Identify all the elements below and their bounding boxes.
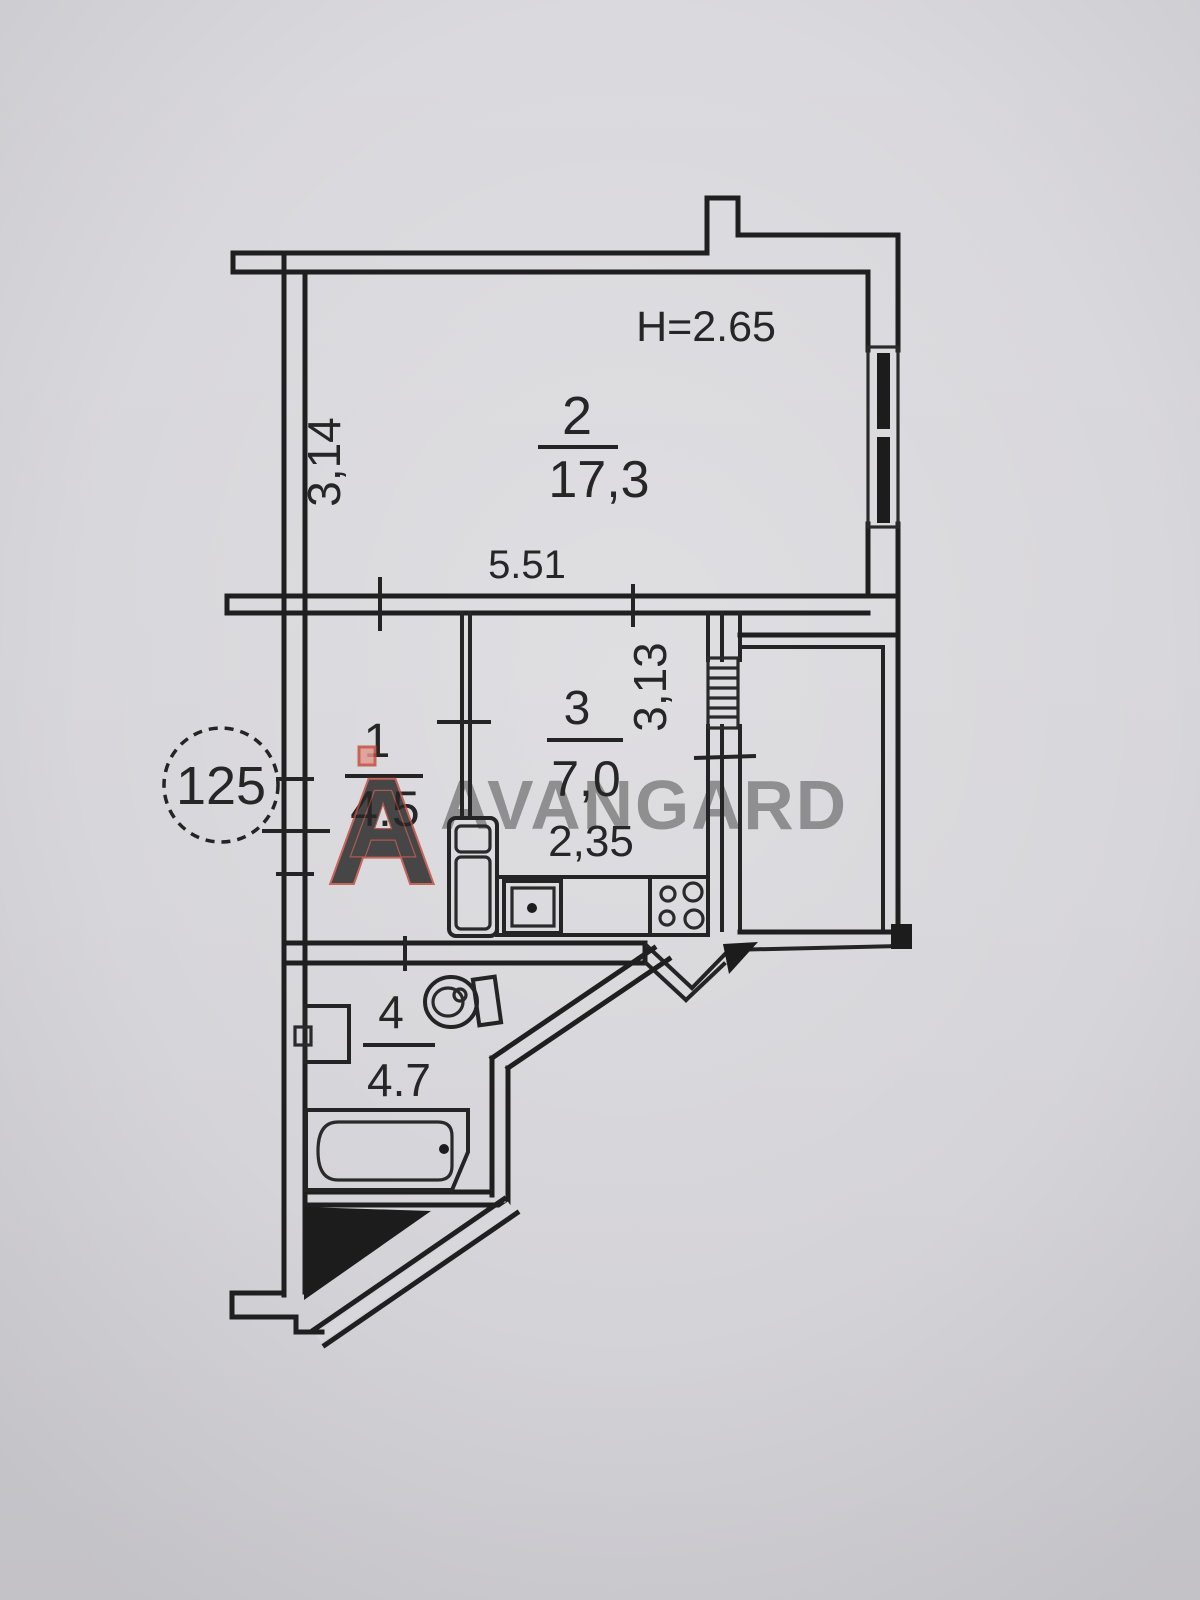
room4-number: 4 (378, 986, 404, 1038)
stove (650, 877, 708, 935)
avangard-logo-icon: A A (328, 747, 436, 915)
room4-area: 4.7 (367, 1054, 431, 1106)
floor-plan: H=2.65 2 17,3 3,14 5.51 1 4.5 3 7,0 2,35… (0, 0, 1200, 1600)
apartment-number-badge: 125 (164, 728, 278, 842)
bathroom-sink (295, 1006, 349, 1062)
room2-width-dim: 5.51 (488, 543, 566, 587)
room2-number: 2 (562, 386, 592, 446)
room2-depth-dim: 3,14 (298, 417, 350, 507)
kitchen-depth-dim: 3,13 (624, 642, 676, 732)
balcony-corner-pier (891, 924, 912, 949)
svg-text:A: A (349, 771, 418, 877)
watermark: A A AVANGARD (328, 747, 848, 915)
kitchen-counter (497, 877, 708, 935)
bathtub (306, 1110, 468, 1190)
room3-number: 3 (564, 682, 591, 735)
window-kitchen-balcony (708, 658, 738, 728)
room2-area: 17,3 (548, 451, 649, 509)
wall-pier (723, 942, 758, 974)
watermark-brand-text: AVANGARD (440, 766, 848, 844)
apartment-number: 125 (176, 756, 266, 816)
toilet (425, 977, 501, 1027)
ceiling-height-label: H=2.65 (636, 303, 776, 351)
